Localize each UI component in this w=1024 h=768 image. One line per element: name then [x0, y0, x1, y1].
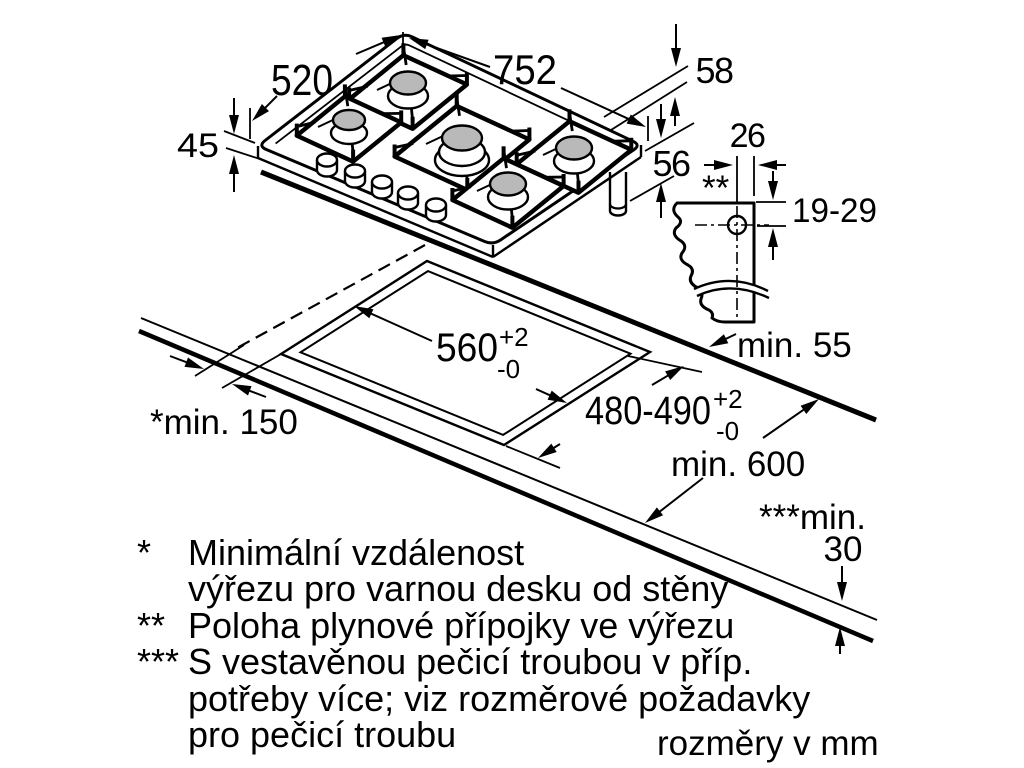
- svg-text:-0: -0: [716, 416, 739, 446]
- svg-text:520: 520: [271, 56, 333, 105]
- svg-text:Minimální vzdálenost: Minimální vzdálenost: [188, 532, 524, 573]
- svg-text:45: 45: [177, 127, 219, 165]
- svg-text:výřezu pro varnou desku od stě: výřezu pro varnou desku od stěny: [188, 568, 728, 609]
- svg-text:min. 600: min. 600: [671, 445, 805, 484]
- svg-text:min. 55: min. 55: [737, 326, 852, 365]
- svg-text:560: 560: [436, 326, 498, 370]
- svg-text:*: *: [137, 532, 151, 573]
- svg-text:+2: +2: [713, 384, 743, 414]
- svg-text:26: 26: [730, 117, 765, 155]
- svg-text:**: **: [702, 169, 730, 208]
- svg-text:**: **: [137, 605, 165, 646]
- svg-text:Poloha plynové přípojky ve výř: Poloha plynové přípojky ve výřezu: [188, 605, 734, 646]
- svg-text:58: 58: [695, 50, 733, 91]
- svg-text:480-490: 480-490: [585, 389, 711, 433]
- svg-text:-0: -0: [497, 354, 520, 384]
- svg-text:pro pečicí troubu: pro pečicí troubu: [188, 714, 456, 755]
- svg-text:19-29: 19-29: [792, 192, 877, 230]
- svg-text:potřeby více; viz rozměrové po: potřeby více; viz rozměrové požadavky: [188, 678, 810, 719]
- svg-text:***: ***: [137, 641, 179, 682]
- svg-text:56: 56: [652, 143, 690, 184]
- svg-text:*min. 150: *min. 150: [150, 403, 298, 442]
- svg-text:+2: +2: [499, 322, 529, 352]
- svg-text:30: 30: [824, 530, 863, 569]
- svg-text:rozměry v mm: rozměry v mm: [657, 724, 879, 763]
- svg-text:752: 752: [493, 46, 557, 93]
- svg-text:S vestavěnou pečicí troubou v: S vestavěnou pečicí troubou v příp.: [188, 641, 752, 682]
